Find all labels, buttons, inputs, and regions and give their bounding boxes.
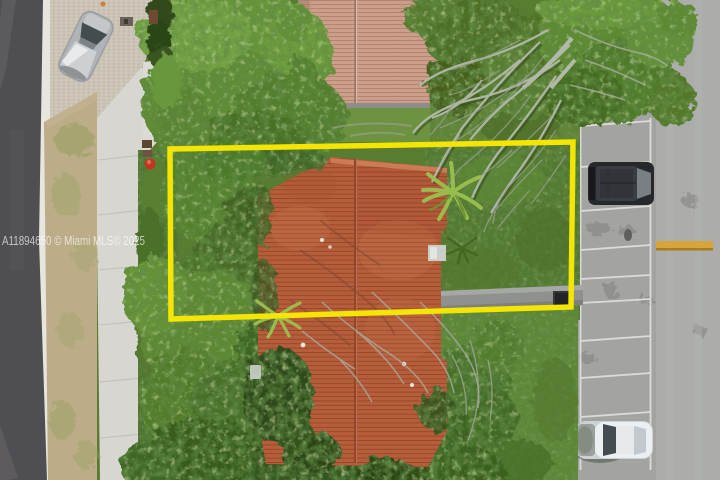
- svg-text:A11894650 © Miami MLS© 2025: A11894650 © Miami MLS© 2025: [2, 233, 145, 248]
